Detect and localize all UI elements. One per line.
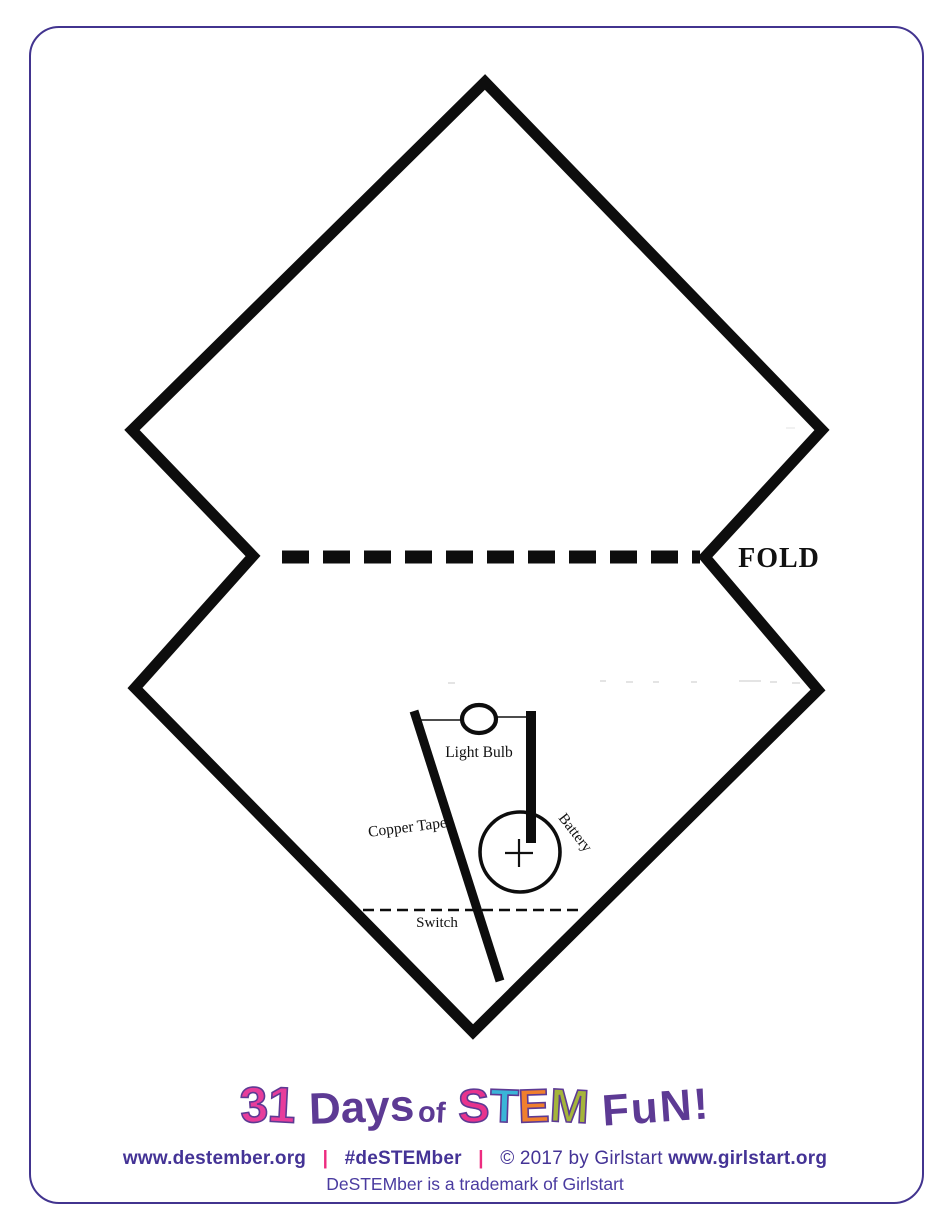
logo-word-of: of: [417, 1098, 446, 1128]
destember-hashtag: #deSTEMber: [345, 1148, 462, 1169]
footer-links-line: www.destember.org | #deSTEMber | © 2017 …: [0, 1148, 950, 1170]
logo-letter-s: S: [457, 1081, 490, 1129]
stem-fun-logo: 3 1 Days of S T E M FuN!: [0, 1080, 950, 1142]
trademark-line: DeSTEMber is a trademark of Girlstart: [0, 1174, 950, 1195]
light-bulb-label: Light Bulb: [445, 744, 513, 761]
copper-tape-label: Copper Tape: [367, 814, 448, 841]
battery-plus-sign: [505, 839, 533, 867]
card-template-diagram: FOLD Light Bulb: [0, 0, 950, 1230]
light-bulb-symbol: [462, 705, 496, 733]
logo-letter-m: M: [548, 1081, 590, 1130]
fold-label: FOLD: [738, 543, 820, 574]
double-diamond-outline: [132, 82, 822, 1032]
logo-digit-3: 3: [238, 1079, 269, 1131]
logo-word-days: Days: [308, 1084, 415, 1132]
destember-url: www.destember.org: [123, 1148, 306, 1169]
worksheet-page: FOLD Light Bulb: [0, 0, 950, 1230]
logo-letter-e: E: [517, 1081, 550, 1129]
separator-pipe: |: [312, 1148, 340, 1169]
logo-letter-t: T: [489, 1082, 519, 1130]
separator-pipe: |: [467, 1148, 495, 1169]
switch-label: Switch: [416, 915, 458, 931]
copyright-text: © 2017 by Girlstart: [500, 1148, 662, 1169]
girlstart-url: www.girlstart.org: [668, 1148, 827, 1169]
logo-word-fun: FuN!: [600, 1082, 711, 1133]
logo-digit-1: 1: [267, 1079, 297, 1130]
